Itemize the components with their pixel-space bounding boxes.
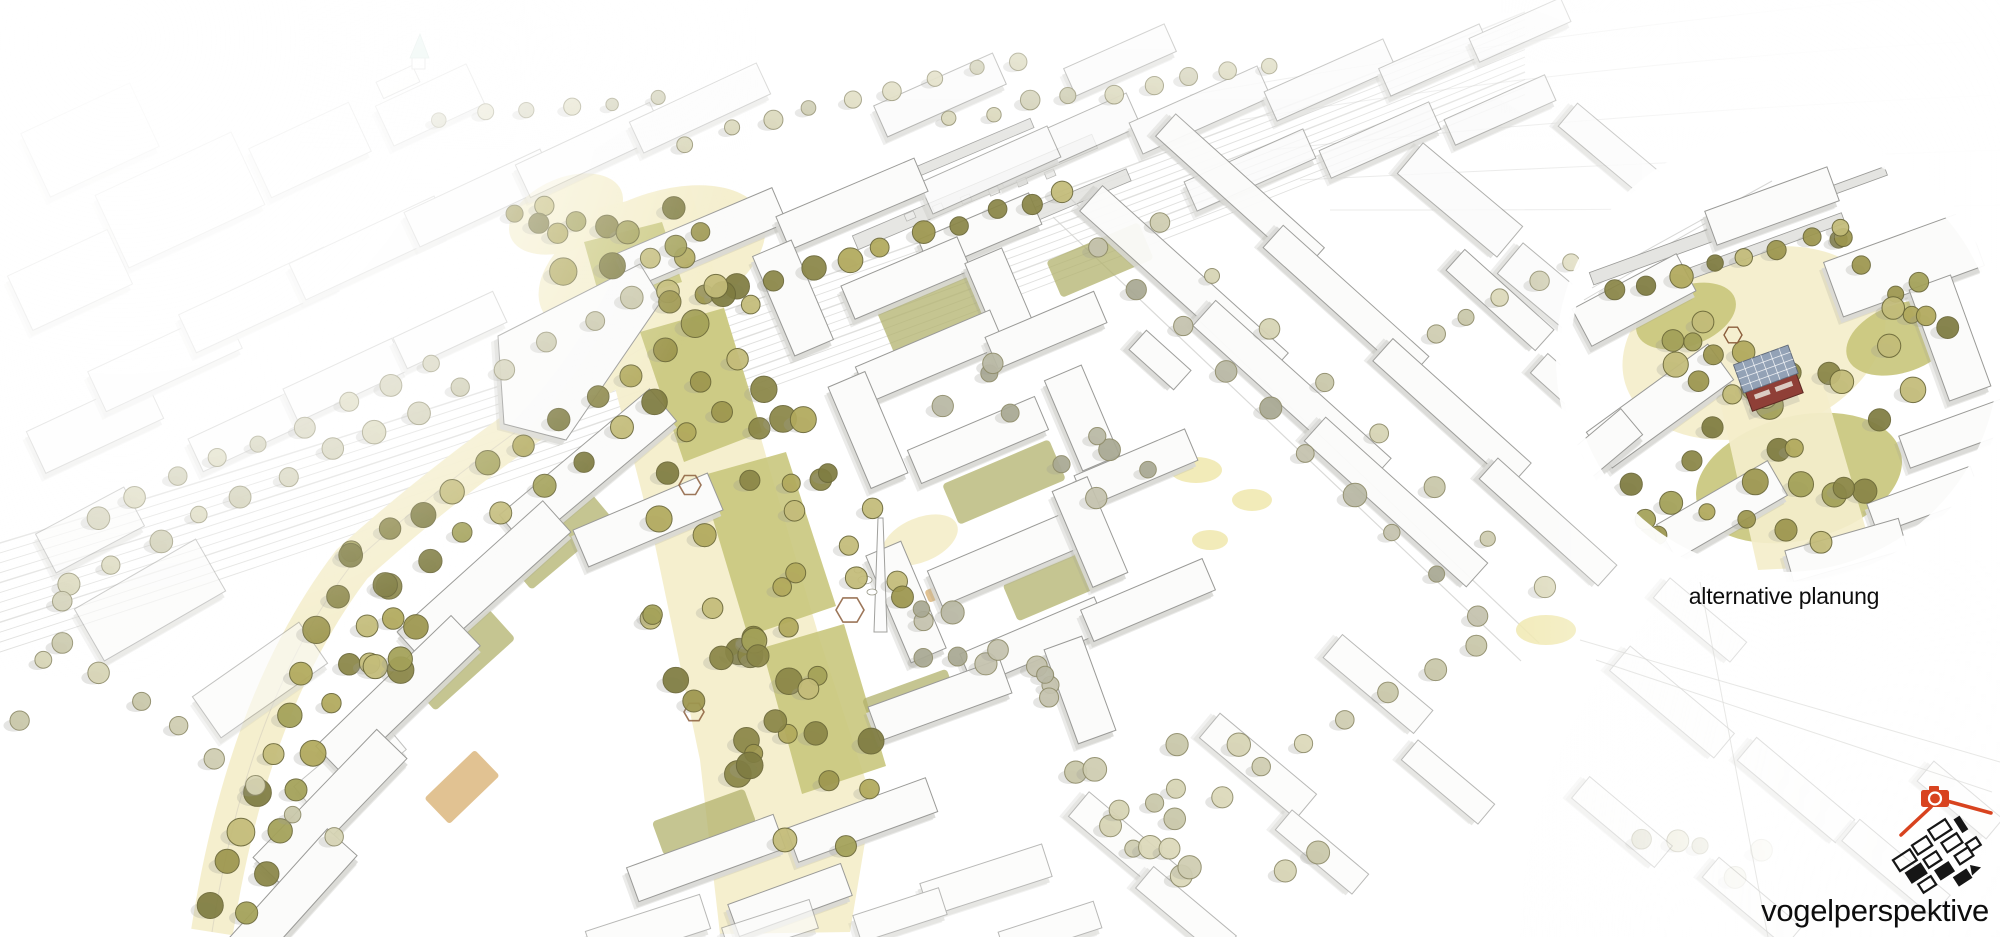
tree-crown <box>246 775 266 795</box>
tree-crown <box>1803 228 1821 246</box>
tree <box>1363 424 1388 444</box>
camera-lens <box>1929 793 1941 805</box>
tree-crown <box>1916 306 1936 326</box>
tree <box>1103 800 1129 821</box>
tree-crown <box>1429 566 1445 582</box>
junction-tint <box>1192 530 1228 550</box>
tree <box>1329 711 1354 731</box>
tree-crown <box>1688 371 1709 392</box>
tree-crown <box>1702 417 1723 438</box>
tree-crown <box>1458 309 1474 325</box>
tree-crown <box>1083 758 1107 782</box>
tree-crown <box>1307 841 1330 864</box>
tree-crown <box>1853 479 1877 503</box>
tree-crown <box>1159 838 1180 859</box>
tree-crown <box>1178 856 1201 879</box>
tree-crown <box>1215 361 1237 383</box>
tree <box>191 892 224 918</box>
tree <box>1474 531 1496 548</box>
tree <box>1421 325 1446 345</box>
junction-tint <box>1232 489 1272 511</box>
tree-crown <box>1252 757 1270 775</box>
tree-crown <box>215 849 239 873</box>
tree-crown <box>1274 860 1296 882</box>
tree-crown <box>1832 219 1849 236</box>
tree <box>1139 794 1164 814</box>
tree-crown <box>1662 330 1684 352</box>
tree-crown <box>1707 255 1723 271</box>
tree <box>1144 213 1170 234</box>
building-block <box>991 901 1103 937</box>
tree-crown <box>1660 491 1683 514</box>
tree-crown <box>1205 268 1220 283</box>
tree-crown <box>1164 808 1186 830</box>
tree-crown <box>1735 249 1752 266</box>
birdseye-visualization-canvas <box>0 0 2000 937</box>
tree-crown <box>1378 682 1399 703</box>
tree-crown <box>1900 377 1925 402</box>
tree <box>1159 734 1188 757</box>
tree-crown <box>1878 334 1901 357</box>
tree <box>1253 319 1280 341</box>
masterplan-rendering: alternative planung vogelperspektive <box>0 0 2000 937</box>
tree-crown <box>325 828 343 846</box>
tree <box>1452 309 1474 327</box>
tree-crown <box>1427 325 1445 343</box>
building-block <box>846 888 949 937</box>
tree-crown <box>1810 531 1832 553</box>
tree-crown <box>773 828 797 852</box>
tree-crown <box>1868 409 1890 431</box>
tree-crown <box>1480 531 1495 546</box>
tree-crown <box>1682 451 1702 471</box>
building-roof-face <box>853 888 947 937</box>
tree-crown <box>1166 734 1188 756</box>
tree-crown <box>1775 519 1797 541</box>
tree-crown <box>1767 241 1786 260</box>
tree-crown <box>236 902 258 924</box>
tree-crown <box>1605 280 1625 300</box>
tree-crown <box>1937 317 1959 339</box>
tree-crown <box>1699 504 1715 520</box>
tree-crown <box>1830 370 1854 394</box>
tree <box>1422 566 1444 584</box>
tree-crown <box>1140 461 1157 478</box>
tree-crown <box>1424 477 1445 498</box>
tree-crown <box>1259 319 1280 340</box>
tree <box>1167 316 1193 337</box>
tree-crown <box>1692 311 1714 333</box>
tree <box>1157 808 1185 831</box>
tree <box>1160 779 1185 799</box>
tree-crown <box>1684 333 1702 351</box>
tree-crown <box>1663 352 1688 377</box>
tree <box>1418 659 1446 682</box>
tree-crown <box>1384 524 1400 540</box>
tree <box>1171 856 1201 880</box>
tree-crown <box>1620 473 1642 495</box>
inset-caption: alternative planung <box>1634 584 1934 609</box>
tree <box>278 779 307 802</box>
tree <box>248 862 279 887</box>
view-title: vogelperspektive <box>1761 895 1989 928</box>
tree-crown <box>1166 779 1185 798</box>
tree-crown <box>860 779 880 799</box>
tree-crown <box>819 771 839 791</box>
tree-crown <box>1833 477 1854 498</box>
tree-crown <box>1636 276 1655 295</box>
tree <box>1253 397 1282 420</box>
tree-crown <box>197 892 223 918</box>
tree <box>1337 483 1367 507</box>
tree-crown <box>1852 256 1870 274</box>
tree-crown <box>285 779 307 801</box>
tree-crown <box>1336 711 1355 730</box>
tree-crown <box>1145 794 1163 812</box>
tree-crown <box>1670 265 1693 288</box>
camera-top <box>1929 786 1939 791</box>
tree-crown <box>1212 787 1233 808</box>
tree-crown <box>1296 445 1314 463</box>
tree-crown <box>1227 733 1250 756</box>
playground-sand <box>424 750 499 825</box>
tree-crown <box>1370 424 1389 443</box>
tree-crown <box>1742 469 1768 495</box>
tree <box>1309 373 1334 393</box>
tree-crown <box>1109 800 1129 820</box>
tree-crown <box>1703 345 1723 365</box>
tree <box>1076 758 1106 782</box>
tree-crown <box>284 806 301 823</box>
tree-crown <box>1260 397 1282 419</box>
tree-crown <box>1785 439 1803 457</box>
tree-crown <box>227 818 255 846</box>
tree <box>1418 477 1446 499</box>
tree-crown <box>255 862 279 886</box>
building-roof-face <box>998 901 1102 937</box>
tree-crown <box>1294 734 1312 752</box>
tree <box>1290 445 1314 464</box>
tree-crown <box>1126 279 1146 299</box>
tree-crown <box>1174 316 1193 335</box>
tree <box>1120 279 1147 300</box>
tree-crown <box>835 836 856 857</box>
tree-crown <box>1316 373 1334 391</box>
tree-crown <box>1909 272 1929 292</box>
tree <box>1268 860 1297 883</box>
tree-crown <box>1738 510 1756 528</box>
tree-crown <box>1425 659 1447 681</box>
tree-crown <box>1343 483 1367 507</box>
tree-crown <box>1788 472 1813 497</box>
tree <box>1205 787 1233 809</box>
tree-crown <box>1150 213 1170 233</box>
tree <box>1209 361 1237 383</box>
tree <box>1288 734 1313 754</box>
